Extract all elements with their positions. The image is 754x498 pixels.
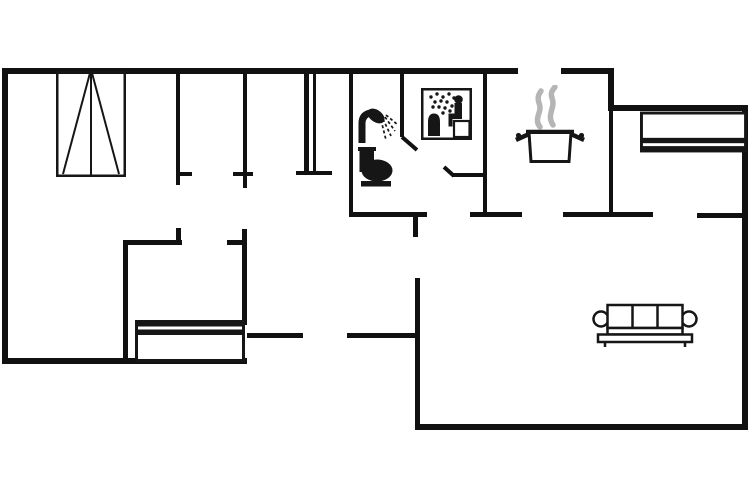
wall-mid-horizontal-b [347, 333, 417, 338]
wall-hallway-a [349, 212, 427, 217]
wall-bathroom-left [349, 73, 353, 215]
wall-bedroom1-divider [176, 73, 180, 185]
wall-sauna-right [483, 73, 487, 217]
floorplan-background [0, 0, 754, 498]
wall-bedroom2-divider [243, 73, 247, 188]
sofa-icon [594, 305, 697, 347]
wall-bedroom1-door-tick [176, 172, 192, 176]
wall-kitchen-right [609, 73, 613, 213]
wall-hallway-d [697, 213, 747, 218]
wall-double-a [304, 73, 309, 175]
wall-exterior-left [2, 68, 8, 364]
wall-smallroom-door-tick [227, 240, 247, 245]
wall-hallway-b [470, 212, 522, 217]
wall-exterior-top-right [608, 105, 748, 111]
wall-smallroom-top [123, 240, 182, 245]
wall-exterior-top-kitchen [561, 68, 614, 74]
wall-double-tick [296, 171, 332, 175]
bed-right-icon [641, 113, 746, 152]
wall-living-left [415, 278, 420, 430]
floorplan-svg [0, 0, 754, 498]
wall-hallway-stub [413, 217, 418, 237]
wall-mid-horizontal-a [247, 333, 303, 338]
wall-sauna-door-ledge [452, 173, 483, 177]
wall-exterior-bottom-living [415, 424, 748, 430]
floorplan-page [0, 0, 754, 498]
wall-hallway-c [563, 212, 653, 217]
wall-exterior-right [742, 105, 748, 430]
sauna-sign-icon [422, 89, 471, 139]
wall-double-b [313, 73, 316, 175]
bed-left-icon [136, 321, 244, 361]
wall-smallroom-stub [176, 228, 181, 242]
wall-sauna-left [400, 73, 404, 137]
wall-smallroom-left [123, 240, 128, 361]
wall-bedroom2-door-tick [233, 172, 253, 176]
